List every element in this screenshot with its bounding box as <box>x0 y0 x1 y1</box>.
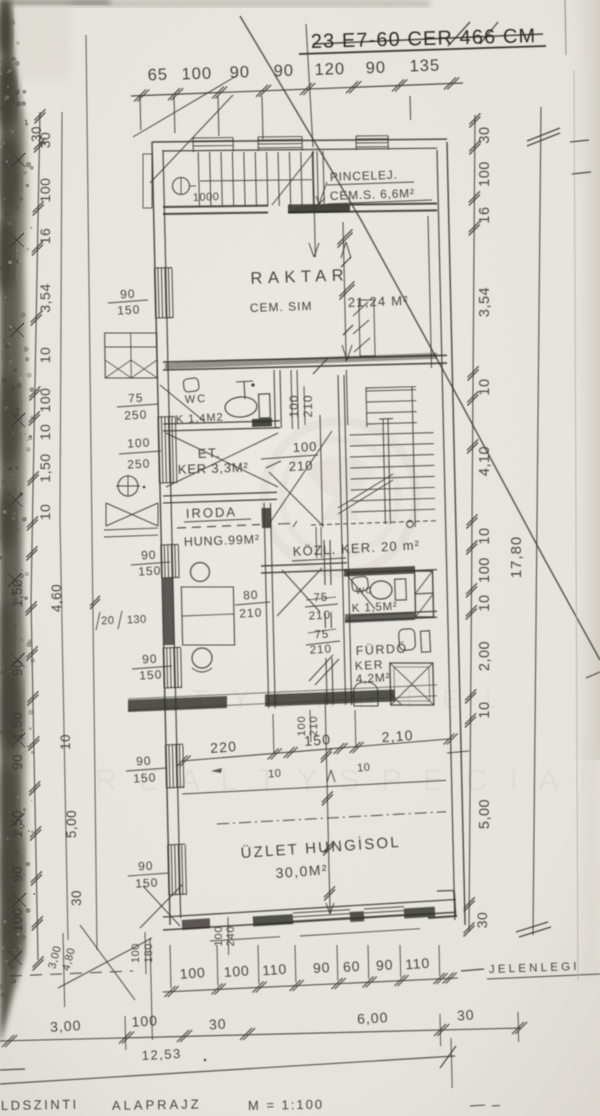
svg-text:16: 16 <box>37 228 53 245</box>
svg-text:220: 220 <box>210 738 238 756</box>
svg-text:2,00: 2,00 <box>477 641 493 671</box>
svg-text:100: 100 <box>10 908 25 932</box>
svg-text:210: 210 <box>309 643 332 656</box>
svg-text:210: 210 <box>308 609 331 622</box>
svg-text:10: 10 <box>58 734 73 750</box>
svg-text:90: 90 <box>136 754 152 769</box>
svg-text:90: 90 <box>365 59 386 78</box>
svg-text:90: 90 <box>142 652 158 667</box>
svg-text:100: 100 <box>181 64 212 83</box>
svg-text:110: 110 <box>262 961 288 979</box>
svg-text:90: 90 <box>376 956 394 973</box>
svg-text:80: 80 <box>243 588 259 603</box>
svg-text:10: 10 <box>37 424 53 441</box>
svg-text:WC: WC <box>356 585 374 596</box>
svg-text:1,50: 1,50 <box>37 453 53 482</box>
svg-text:90: 90 <box>10 754 25 770</box>
svg-text:90: 90 <box>313 959 331 976</box>
svg-text:1,50: 1,50 <box>10 579 25 607</box>
svg-text:90: 90 <box>141 548 157 563</box>
svg-text:6,00: 6,00 <box>357 1009 389 1027</box>
svg-text:100: 100 <box>287 394 301 417</box>
svg-text:210: 210 <box>239 605 263 620</box>
svg-text:4,10: 4,10 <box>477 446 493 476</box>
svg-text:LDSZINTI: LDSZINTI <box>1 1097 79 1113</box>
svg-text:K 1,5M²: K 1,5M² <box>352 601 398 615</box>
svg-text:3,54: 3,54 <box>37 283 53 312</box>
svg-text:210: 210 <box>288 458 313 474</box>
svg-text:90: 90 <box>229 63 250 82</box>
svg-text:5,00: 5,00 <box>477 799 493 829</box>
svg-text:10: 10 <box>37 504 53 521</box>
svg-text:IRODA: IRODA <box>186 504 238 521</box>
svg-text:10: 10 <box>477 378 493 395</box>
svg-text:10: 10 <box>37 347 53 364</box>
svg-text:ET.: ET. <box>198 445 222 461</box>
svg-text:R E A L T Y S P E C I A L I: R E A L T Y S P E C I A L I S T <box>95 764 600 797</box>
svg-text:100: 100 <box>223 962 250 980</box>
svg-text:100: 100 <box>292 439 317 455</box>
svg-text:K 1,4M2: K 1,4M2 <box>176 412 225 426</box>
svg-text:75: 75 <box>128 391 144 406</box>
svg-text:10: 10 <box>477 701 493 718</box>
svg-text:HUNG.99M²: HUNG.99M² <box>184 532 260 549</box>
svg-text:10: 10 <box>357 762 371 775</box>
svg-text:30: 30 <box>457 1007 475 1024</box>
svg-text:100: 100 <box>477 161 493 187</box>
svg-text:CEM.S. 6,6M²: CEM.S. 6,6M² <box>330 186 415 203</box>
svg-text:FÜRDŐ: FÜRDŐ <box>355 640 408 658</box>
svg-text:PINCELEJ.: PINCELEJ. <box>330 168 398 184</box>
svg-text:90: 90 <box>10 866 25 882</box>
svg-text:65: 65 <box>147 66 168 85</box>
svg-text:250: 250 <box>127 456 151 471</box>
svg-text:90: 90 <box>120 287 136 302</box>
svg-text:30: 30 <box>477 126 493 143</box>
svg-text:30: 30 <box>209 1016 227 1033</box>
svg-text:210: 210 <box>301 394 315 417</box>
svg-text:10: 10 <box>477 594 493 611</box>
svg-text:100: 100 <box>37 388 53 413</box>
svg-text:110: 110 <box>405 955 431 973</box>
svg-text:3,54: 3,54 <box>477 287 493 317</box>
svg-text:90: 90 <box>138 859 154 874</box>
svg-text:150: 150 <box>304 731 332 749</box>
svg-text:RAKTAR: RAKTAR <box>250 266 349 287</box>
svg-text:240: 240 <box>225 926 237 947</box>
svg-text:135: 135 <box>409 56 440 75</box>
svg-text:100: 100 <box>37 178 53 203</box>
svg-text:12,53: 12,53 <box>141 1046 182 1063</box>
svg-text:180: 180 <box>143 943 155 963</box>
svg-text:30: 30 <box>69 890 84 906</box>
svg-text:3,00: 3,00 <box>50 1017 82 1035</box>
svg-text:100: 100 <box>131 1012 158 1029</box>
svg-text:WC: WC <box>185 393 208 406</box>
svg-text:20: 20 <box>101 615 115 628</box>
svg-text:16: 16 <box>477 206 493 223</box>
svg-text:1000: 1000 <box>193 191 220 204</box>
svg-text:100: 100 <box>127 435 151 450</box>
svg-text:21,24 M²: 21,24 M² <box>348 293 409 310</box>
svg-text:1,50: 1,50 <box>10 712 25 740</box>
svg-text:150: 150 <box>138 563 162 578</box>
svg-text:150: 150 <box>117 302 141 317</box>
svg-text:150: 150 <box>135 875 159 890</box>
svg-text:30: 30 <box>474 912 490 929</box>
svg-text:150: 150 <box>133 770 157 785</box>
svg-text:130: 130 <box>127 613 147 626</box>
svg-text:150: 150 <box>139 667 163 682</box>
svg-text:10: 10 <box>477 527 493 544</box>
svg-text:120: 120 <box>314 60 345 79</box>
svg-text:90: 90 <box>10 660 25 676</box>
svg-text:1,50: 1,50 <box>10 810 25 838</box>
svg-text:17,80: 17,80 <box>508 536 525 579</box>
svg-text:5,00: 5,00 <box>64 810 79 838</box>
svg-text:100: 100 <box>213 926 225 947</box>
svg-text:M = 1:100: M = 1:100 <box>248 1097 324 1113</box>
svg-text:4,60: 4,60 <box>49 584 64 612</box>
svg-text:10: 10 <box>268 768 282 781</box>
svg-text:60: 60 <box>343 958 361 975</box>
svg-text:CEM. SIM: CEM. SIM <box>250 299 313 315</box>
svg-text:KER 3,3M²: KER 3,3M² <box>178 460 249 477</box>
svg-text:100: 100 <box>179 964 206 982</box>
svg-text:2,10: 2,10 <box>381 727 414 745</box>
svg-text:250: 250 <box>124 407 148 422</box>
svg-text:100: 100 <box>477 557 493 583</box>
svg-text:ALAPRAJZ: ALAPRAJZ <box>112 1096 202 1113</box>
svg-text:30: 30 <box>29 126 44 142</box>
